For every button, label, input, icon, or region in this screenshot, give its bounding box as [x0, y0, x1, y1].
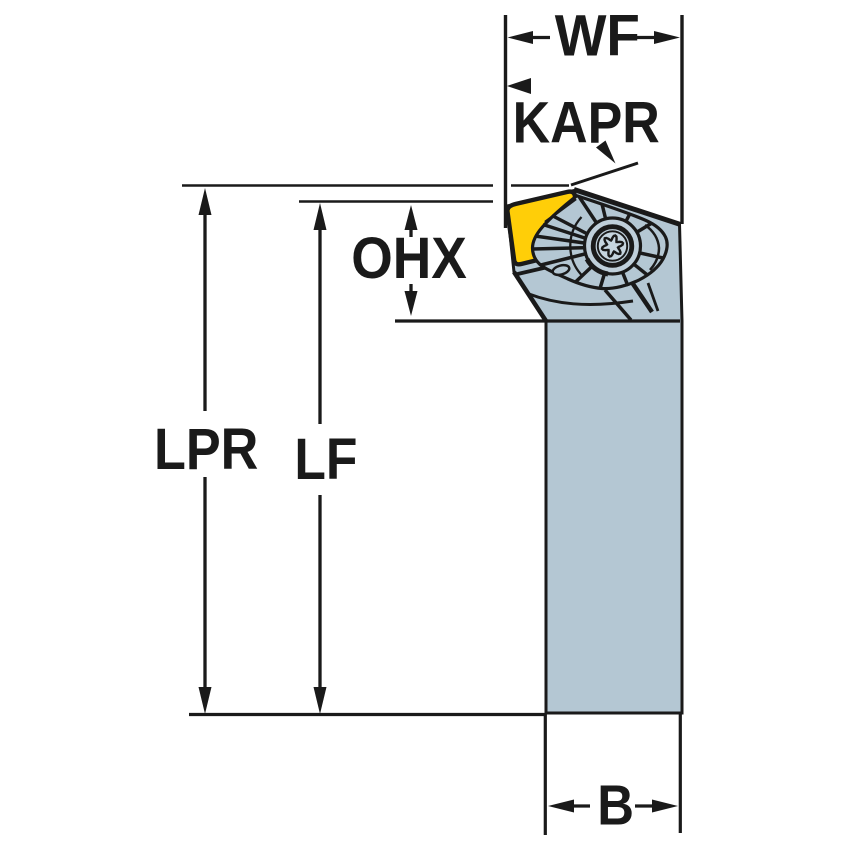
svg-text:LF: LF: [294, 426, 357, 491]
svg-text:OHX: OHX: [351, 226, 467, 291]
svg-text:KAPR: KAPR: [513, 90, 660, 155]
svg-text:WF: WF: [555, 3, 640, 68]
svg-text:B: B: [597, 774, 634, 837]
svg-text:LPR: LPR: [154, 416, 258, 481]
